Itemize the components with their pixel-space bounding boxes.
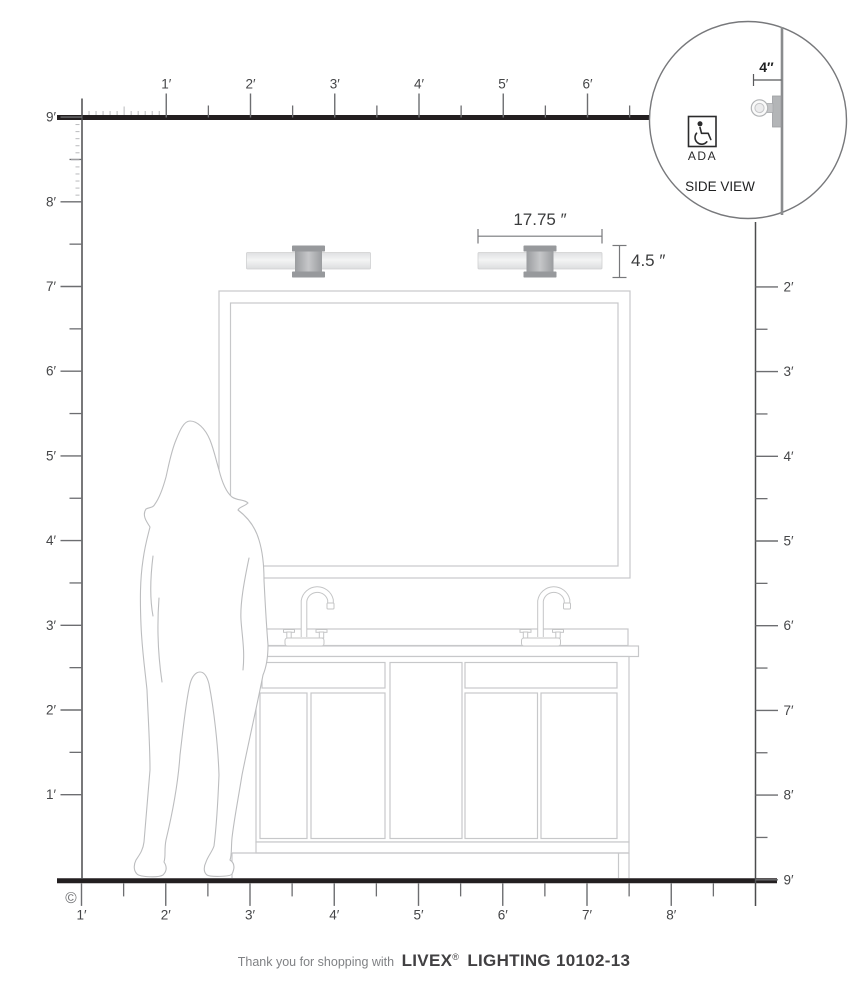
ruler-label: 7′: [582, 907, 593, 922]
countertop: [240, 646, 639, 657]
ada-label: ADA: [688, 149, 717, 163]
ruler-label: 9′: [46, 110, 57, 125]
ruler-label: 7′: [46, 279, 57, 294]
diagram-canvas: 1′2′3′4′5′6′9′8′7′6′5′4′3′2′1′2′3′4′5′6′…: [0, 0, 868, 1000]
ruler-label: 6′: [784, 618, 795, 633]
side-view-inset: 4″ ADA SIDE VIEW: [650, 22, 847, 219]
door-4: [541, 693, 617, 839]
wall-offset-dimension-label: 4″: [759, 59, 774, 75]
ada-box: [689, 117, 717, 147]
footer-model-number: LIGHTING 10102-13: [467, 951, 630, 970]
ada-badge: ADA: [688, 117, 717, 164]
ruler-label: 9′: [784, 872, 795, 887]
ruler-label: 4′: [784, 449, 795, 464]
door-2: [311, 693, 385, 839]
footer-caption: Thank you for shopping with LIVEX® LIGHT…: [0, 951, 868, 971]
fixture-backplate: [773, 96, 782, 127]
drawer-front-left: [262, 663, 385, 689]
ruler-label: 8′: [46, 194, 57, 209]
ruler-label: 3′: [245, 907, 256, 922]
door-1: [260, 693, 307, 839]
ruler-label: 1′: [46, 787, 57, 802]
ruler-label: 8′: [666, 907, 677, 922]
ruler-label: 1′: [161, 77, 172, 92]
footer-prefix: Thank you for shopping with: [238, 955, 394, 969]
ruler-label: 2′: [161, 907, 172, 922]
light-fixture: [478, 246, 602, 278]
ruler-label: 5′: [784, 534, 795, 549]
ruler-label: 8′: [784, 788, 795, 803]
ruler-label: 5′: [498, 77, 509, 92]
ruler-label: 6′: [582, 77, 593, 92]
ruler-label: 2′: [245, 77, 256, 92]
fixture-bulb-inner: [755, 103, 764, 112]
width-dimension: [478, 229, 602, 244]
bottom-rail: [256, 842, 629, 853]
ruler-label: 5′: [413, 907, 424, 922]
ruler-label: 3′: [330, 77, 341, 92]
scale-diagram-page: 1′2′3′4′5′6′9′8′7′6′5′4′3′2′1′2′3′4′5′6′…: [0, 0, 868, 1000]
registered-mark: ®: [452, 952, 459, 962]
ruler-label: 2′: [46, 703, 57, 718]
vanity-light-fixtures: [247, 246, 603, 278]
ruler-label: 6′: [46, 364, 57, 379]
mirror-inner-frame: [231, 303, 619, 566]
height-dimension: [613, 246, 627, 278]
fixture-height-dimension-label: 4.5 ″: [631, 251, 665, 270]
copyright-symbol: ©: [65, 890, 77, 907]
vanity-cabinet: [232, 629, 639, 878]
mirror: [219, 291, 630, 578]
ruler-label: 4′: [329, 907, 340, 922]
center-panel: [390, 663, 462, 839]
ruler-label: 4′: [414, 77, 425, 92]
light-fixture: [247, 246, 371, 278]
side-view-label: SIDE VIEW: [685, 179, 755, 194]
fixture-width-dimension-label: 17.75 ″: [513, 210, 566, 229]
ruler-label: 7′: [784, 703, 795, 718]
ruler-label: 4′: [46, 533, 57, 548]
ruler-label: 3′: [46, 618, 57, 633]
ruler-label: 1′: [76, 907, 87, 922]
drawer-front-right: [465, 663, 617, 689]
ruler-label: 5′: [46, 448, 57, 463]
ruler-label: 3′: [784, 364, 795, 379]
ruler-label: 2′: [784, 279, 795, 294]
ruler-label: 6′: [498, 907, 509, 922]
footer-brand: LIVEX: [402, 951, 453, 970]
door-3: [465, 693, 538, 839]
